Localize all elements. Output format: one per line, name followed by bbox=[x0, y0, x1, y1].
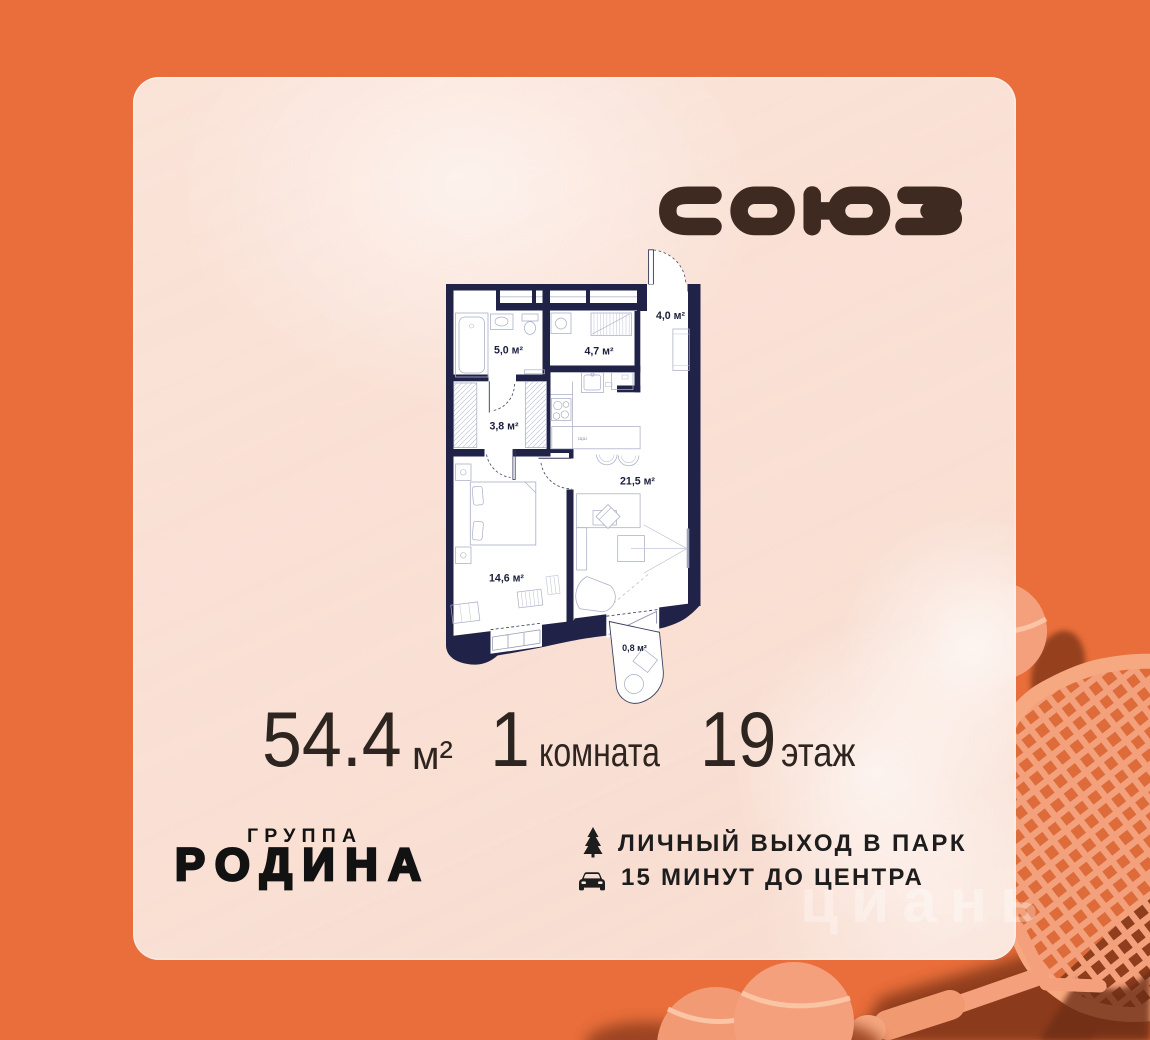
svg-text:4,7 м²: 4,7 м² bbox=[584, 346, 614, 358]
svg-text:5,0 м²: 5,0 м² bbox=[494, 345, 524, 357]
svg-text:4,0 м²: 4,0 м² bbox=[656, 310, 686, 322]
svg-text:0,8 м²: 0,8 м² bbox=[622, 643, 647, 653]
svg-text:щш: щш bbox=[578, 436, 588, 442]
svg-text:3,8 м²: 3,8 м² bbox=[489, 421, 519, 433]
svg-text:21,5 м²: 21,5 м² bbox=[620, 476, 655, 488]
svg-text:14,6 м²: 14,6 м² bbox=[489, 573, 524, 585]
